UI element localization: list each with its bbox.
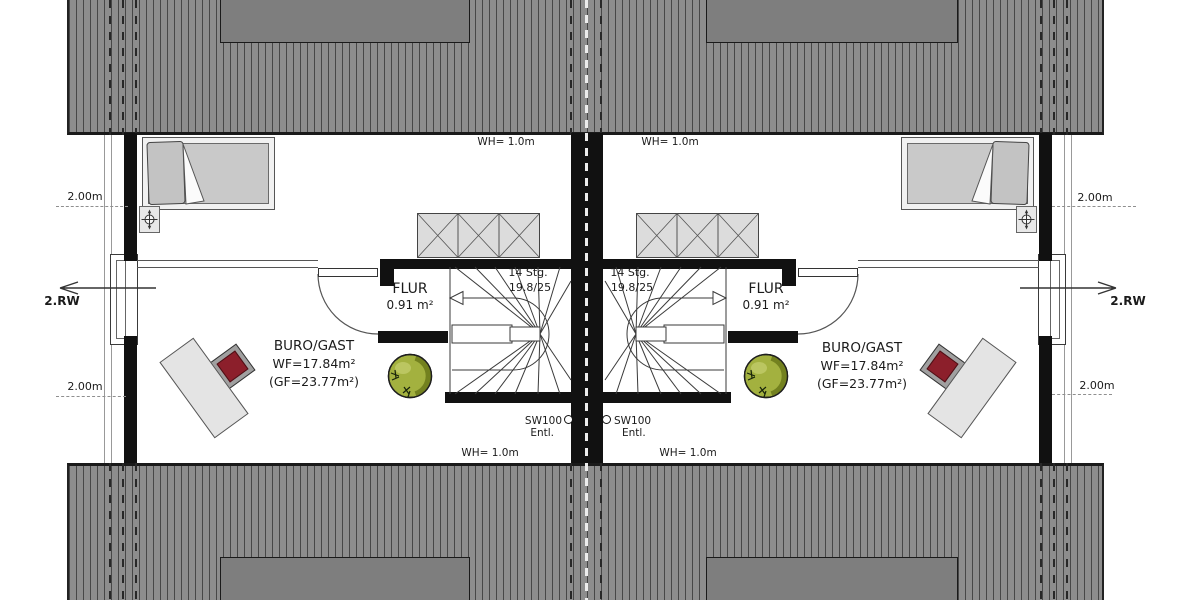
exterior-wall-right [1039,345,1052,463]
room-label-flur: FLUR [739,281,793,297]
room-wf-label: WF=17.84m² [257,357,371,371]
door-leaf-right [798,268,858,277]
exterior-wall-left [124,133,137,254]
hidden-wall-line [1066,463,1068,600]
eave-line [104,135,105,463]
hidden-party-wall-line [600,463,602,600]
party-wall-axis [585,133,588,463]
hidden-wall-line [1040,463,1042,600]
dormer-top-left [220,0,470,43]
stair-steps-label: 14 Stg. [601,267,659,280]
room-gf-label: (GF=23.77m²) [257,375,371,389]
dim-line [56,396,126,397]
hidden-wall-line [135,0,137,135]
escape-route-label: 2.RW [1102,295,1154,309]
room-area-flur: 0.91 m² [735,299,797,313]
escape-route-label: 2.RW [36,295,88,309]
door-leaf-left [318,268,378,277]
window-jamb [1039,336,1052,345]
exterior-wall-right [1039,133,1052,254]
dim-line [1052,206,1136,207]
dim-label: 2.00m [1072,192,1118,205]
window-jamb [124,252,137,261]
hidden-wall-line [1053,463,1055,600]
stair-riserun-label: 19.8/25 [603,282,661,295]
flur-bottom-wall-right-unit [728,331,798,343]
room-label-flur: FLUR [383,281,437,297]
room-area-flur: 0.91 m² [379,299,441,313]
dim-label: 2.00m [62,381,108,394]
wall-height-label: WH= 1.0m [450,447,530,459]
plant-right [742,352,790,400]
hidden-wall-line [122,0,124,135]
wall-height-label: WH= 1.0m [466,136,546,148]
hidden-wall-line [1066,0,1068,135]
party-wall-axis [585,0,588,135]
vent-pipe-right [602,415,611,424]
party-wall-axis [585,463,588,600]
hidden-wall-line [109,463,111,600]
room-gf-label: (GF=23.77m²) [805,377,919,391]
room-label-buero: BURO/GAST [257,339,371,355]
hidden-wall-line [122,463,124,600]
vent-code-label: SW100 [614,415,672,427]
flur-bottom-wall-left-unit [378,331,448,343]
hidden-wall-line [1040,0,1042,135]
closet-left [417,213,540,258]
bed-right [901,137,1034,210]
dim-line [1052,394,1112,395]
dormer-top-right [706,0,958,43]
knee-wall-line-left [137,260,318,268]
exterior-wall-left [124,345,137,463]
stair-riserun-label: 19.8/25 [501,282,559,295]
dim-label: 2.00m [62,191,108,204]
window-jamb [1039,252,1052,261]
light-symbol-left [139,206,160,233]
dim-line [56,206,128,207]
room-wf-label: WF=17.84m² [805,359,919,373]
hidden-wall-line [1053,0,1055,135]
attic-floor-plan: WH= 1.0m WH= 1.0m FLUR 0.91 m² 14 Stg. 1… [0,0,1200,600]
hidden-wall-line [109,0,111,135]
hidden-party-wall-line [570,0,572,135]
room-label-buero: BURO/GAST [805,341,919,357]
window-jamb [124,336,137,345]
hidden-party-wall-line [570,463,572,600]
hidden-party-wall-line [600,0,602,135]
window-right-frame [1050,260,1060,339]
closet-right [636,213,759,258]
hidden-wall-line [135,463,137,600]
vent-type-label: Entl. [504,427,554,439]
bed-left [142,137,275,210]
plant-left [386,352,434,400]
dormer-bottom-right [706,557,958,600]
stair-steps-label: 14 Stg. [499,267,557,280]
window-left-frame [116,260,126,339]
vent-pipe-left [564,415,573,424]
eave-line [1071,135,1072,463]
wall-height-label: WH= 1.0m [630,136,710,148]
dormer-bottom-left [220,557,470,600]
vent-type-label: Entl. [622,427,672,439]
vent-code-label: SW100 [504,415,562,427]
knee-wall-line-right [858,260,1039,268]
wall-height-label: WH= 1.0m [648,447,728,459]
dim-label: 2.00m [1074,380,1120,393]
light-symbol-right [1016,206,1037,233]
